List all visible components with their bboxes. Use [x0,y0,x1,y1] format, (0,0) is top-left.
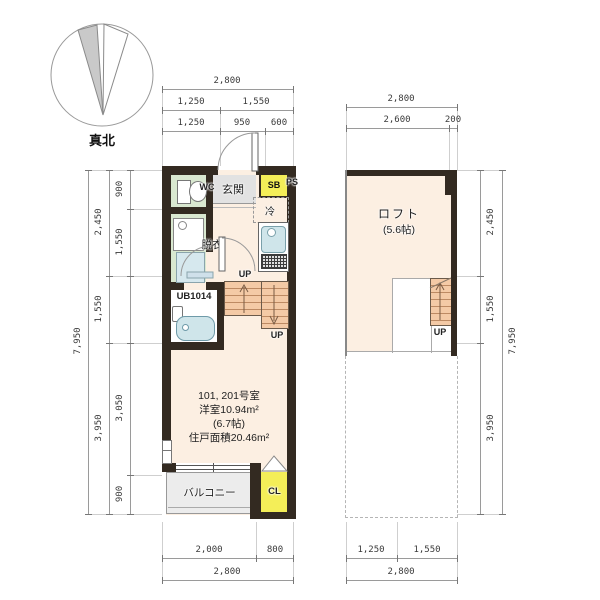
dimension-tick [293,555,294,562]
entrance-door-swing-arc [218,133,255,170]
dimension-tick [256,555,257,562]
loft-stairs [430,278,453,326]
loft-floor [347,278,392,352]
extension-line [346,110,347,170]
dimension-tick [220,128,221,135]
loft-up-label: UP [426,327,454,337]
dimension-tick [397,555,398,562]
stove [261,254,287,269]
dim-label: 900 [115,159,125,219]
extension-line [88,514,162,515]
dim-label: 3,050 [115,378,125,438]
dim-label: 1,550 [94,279,104,339]
wall [162,463,176,472]
washer-drain [178,221,187,230]
extension-line [109,343,162,344]
dimension-line [480,170,481,514]
dim-label: 2,800 [197,567,257,577]
extension-line [265,134,266,166]
refrigerator-label: 冷 [258,203,282,218]
dimension-tick [162,86,163,93]
dim-label: 600 [249,118,309,128]
dimension-line [162,558,293,559]
loft-void-opening [392,278,432,353]
extension-line [88,170,162,171]
dimension-tick [477,170,484,171]
dim-label: 1,550 [397,545,457,555]
room-tatami: (6.7帖) [150,417,308,431]
closet-label: CL [261,486,288,497]
dimension-line [88,170,89,514]
lower-floor-dashed-outline [345,356,458,518]
stairs-upper-run [224,281,263,316]
faucet-icon [267,228,276,237]
dim-label: 1,550 [115,212,125,272]
dimension-tick [265,128,266,135]
extension-line [449,131,450,170]
dimension-tick [106,514,113,515]
dimension-tick [162,107,163,114]
dimension-tick [106,170,113,171]
dim-label: 1,250 [161,97,221,107]
extension-line [457,522,458,580]
dim-label: 1,550 [486,279,496,339]
wall [250,512,296,519]
dim-label: 7,950 [508,311,518,371]
side-window [162,440,172,464]
dimension-tick [162,577,163,584]
dimension-tick [106,343,113,344]
extension-line [109,276,162,277]
dim-label: 1,550 [226,97,286,107]
unit-bath-label: UB1014 [169,291,219,302]
dimension-tick [293,86,294,93]
dimension-tick [85,514,92,515]
floorplan-canvas: 真北 2,800 1,250 1,550 1,250 950 600 7,950… [0,0,600,600]
dimension-tick [346,104,347,111]
dimension-line [346,580,457,581]
unit-area: 住戸面積20.46m² [150,431,308,445]
stairs-lower-run [261,281,289,329]
dim-label: 2,800 [371,567,431,577]
up-label-mid: UP [231,269,259,279]
dimension-line [162,131,293,132]
wall [162,207,213,214]
dimension-tick [477,343,484,344]
dimension-line [346,128,457,129]
north-arrow-icon [48,18,158,130]
balcony-window-mullion [213,463,214,472]
dimension-tick [477,514,484,515]
dimension-tick [293,577,294,584]
side-window-line [162,450,171,451]
loft-floor-edge [345,351,451,352]
dim-label: 1,250 [341,545,401,555]
dimension-tick [499,170,506,171]
dimension-tick [127,343,134,344]
dim-label: 2,450 [94,192,104,252]
dimension-line [346,107,457,108]
dimension-tick [127,475,134,476]
dim-label: 2,600 [367,115,427,125]
dimension-tick [457,577,458,584]
dimension-tick [457,125,458,132]
dimension-tick [220,107,221,114]
balcony-label: バルコニー [166,485,253,500]
dimension-tick [162,555,163,562]
dim-label: 3,950 [94,398,104,458]
pipe-space-label: PS [284,177,300,187]
dimension-tick [293,107,294,114]
dimension-line [346,558,457,559]
dim-label: 200 [423,115,483,125]
extension-line [130,475,162,476]
room-area: 洋室10.94m² [150,403,308,417]
dimension-line [109,170,110,514]
dimension-tick [106,276,113,277]
wall [162,282,184,290]
dimension-line [130,170,131,514]
dimension-tick [127,276,134,277]
dim-label: 2,000 [179,545,239,555]
dim-label: 2,450 [486,192,496,252]
dressing-room-label: 脱衣 [192,237,232,252]
dimension-tick [499,514,506,515]
dim-label: 2,800 [371,94,431,104]
compass-label: 真北 [62,130,142,149]
loft-size-label: (5.6帖) [349,222,449,237]
dimension-line [162,89,293,90]
dimension-tick [127,170,134,171]
loft-left-edge [345,170,347,356]
dimension-line [162,110,293,111]
up-label-low: UP [263,330,291,340]
dim-label: 7,950 [73,311,83,371]
bathtub-drain [182,324,189,331]
dimension-tick [477,276,484,277]
entrance-step-line [213,207,256,208]
dimension-line [162,580,293,581]
wall [162,342,224,350]
balcony-railing-line [168,507,251,508]
extension-line [162,522,163,580]
dim-label: 2,800 [197,76,257,86]
dimension-tick [449,125,450,132]
dimension-tick [85,170,92,171]
dim-label: 3,950 [486,398,496,458]
dimension-tick [346,125,347,132]
dimension-tick [127,514,134,515]
dim-label: 900 [115,464,125,524]
compass [48,18,158,130]
main-room-text: 101, 201号室 洋室10.94m² (6.7帖) 住戸面積20.46m² [150,389,308,445]
loft-label: ロフト [349,205,449,222]
room-number: 101, 201号室 [150,389,308,403]
wall [345,170,457,176]
vanity-unit [176,252,205,283]
dimension-tick [457,104,458,111]
dimension-tick [162,128,163,135]
dimension-tick [457,555,458,562]
dimension-line [502,170,503,514]
dimension-tick [127,209,134,210]
dimension-tick [293,128,294,135]
dimension-tick [346,577,347,584]
dimension-tick [346,555,347,562]
entrance-label: 玄関 [211,181,255,197]
dim-label: 800 [245,545,305,555]
extension-line [130,209,162,210]
